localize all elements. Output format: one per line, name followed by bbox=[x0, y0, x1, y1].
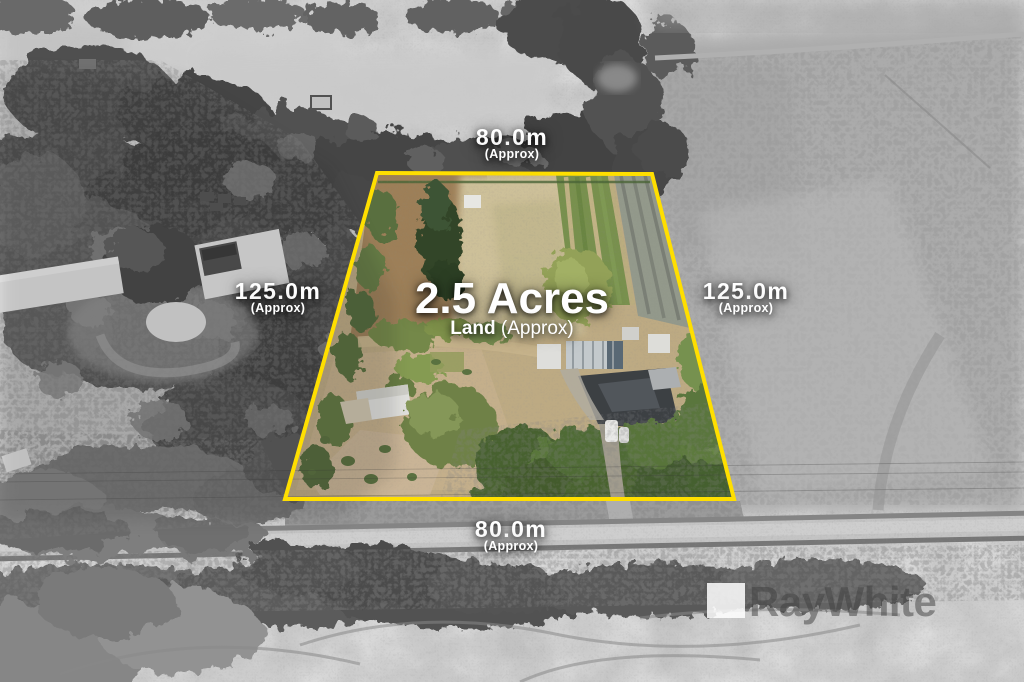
svg-text:RayWhite: RayWhite bbox=[749, 578, 936, 625]
